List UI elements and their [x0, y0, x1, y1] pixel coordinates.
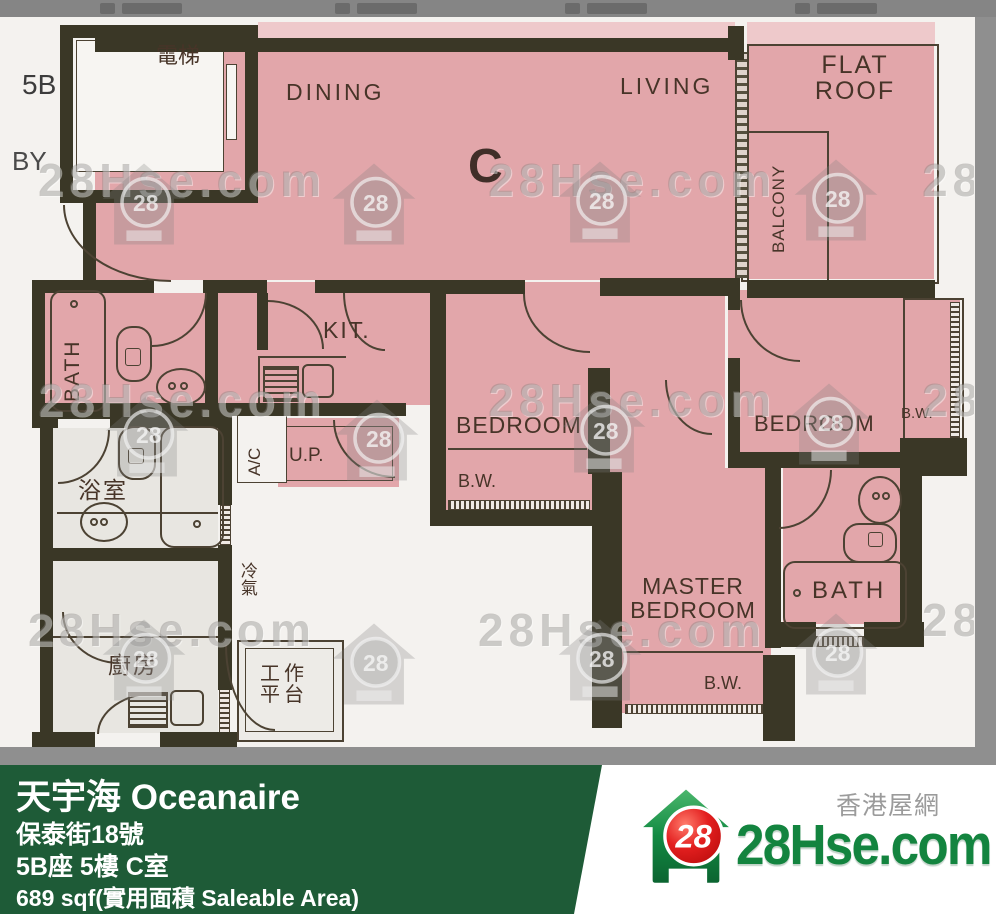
wall: [430, 280, 446, 516]
bath1-label: BATH: [62, 302, 84, 402]
wall: [763, 655, 795, 741]
floor-plan: 5B BY 電梯 DINING LIVING C FLAT ROOF BALCO…: [0, 0, 996, 760]
work-line1: 工作: [260, 663, 308, 685]
toilet-tank: [868, 532, 883, 547]
watermark-fragment: [100, 3, 115, 14]
balcony-glass-wall: [735, 52, 749, 278]
wall: [52, 548, 230, 561]
wall: [588, 368, 610, 474]
door-arc-entrance: [63, 205, 171, 282]
bedroom1-bw-line: [448, 448, 587, 450]
wall: [203, 280, 267, 293]
top-edge-strip: [258, 22, 735, 38]
watermark-fragment: [587, 3, 647, 14]
wall: [443, 280, 525, 294]
svg-text:28: 28: [675, 818, 713, 855]
bathtub: [160, 426, 224, 548]
bw-label-bedroom1: B.W.: [458, 472, 496, 491]
svg-text:28: 28: [363, 650, 389, 676]
wall: [218, 403, 406, 416]
watermark-fragment: [335, 3, 350, 14]
unit-label: C: [468, 142, 503, 192]
work-platform-label: 工作 平台: [250, 664, 318, 706]
scan-edge-top: [0, 0, 996, 17]
property-title: 天宇海 Oceanaire: [16, 769, 300, 820]
watermark-fragment: [795, 3, 810, 14]
sink-dot: [100, 518, 108, 526]
bedroom1-label: BEDROOM: [456, 413, 582, 437]
watermark-fragment: [817, 3, 877, 14]
bw-label-master: B.W.: [704, 674, 742, 693]
kitchen-sink: [302, 364, 334, 398]
bw-label-bedroom2: B.W.: [901, 406, 933, 422]
master-bedroom-label: MASTER BEDROOM: [618, 574, 768, 622]
stove: [128, 692, 168, 728]
adjacent-window-sill2: [219, 688, 230, 735]
lift-inner-outline: [76, 40, 224, 172]
tap-dot: [793, 589, 801, 597]
ac-label: A/C: [246, 424, 264, 476]
watermark-fragment: [565, 3, 580, 14]
master-line2: BEDROOM: [630, 597, 756, 623]
kitchen-cn-label: 廚房: [108, 653, 158, 677]
work-line2: 平台: [260, 684, 308, 706]
wall: [600, 278, 740, 296]
site-logo-house-icon: 28: [638, 786, 734, 886]
wall: [257, 293, 268, 350]
wall: [60, 25, 73, 203]
block-label: 5B: [22, 70, 56, 99]
dining-label: DINING: [286, 80, 385, 104]
kitchen-sink: [170, 690, 204, 726]
watermark-fragment: [122, 3, 182, 14]
site-logo-chinese: 香港屋網: [836, 786, 940, 822]
kit-label: KIT.: [323, 318, 371, 342]
scan-edge-right: [975, 17, 996, 747]
master-line1: MASTER: [642, 573, 744, 599]
master-bw-line: [623, 651, 763, 653]
kit-counter-line-v: [258, 356, 260, 403]
bedroom2-label: BEDROOM: [754, 412, 875, 435]
toilet-tank: [128, 448, 144, 464]
up-label: U.P.: [289, 446, 324, 466]
bedroom1-window-sill: [448, 500, 590, 510]
sink-dot: [90, 518, 98, 526]
property-info-bar: 天宇海 Oceanaire 保泰街18號 5B座 5樓 C室 689 sqf(實…: [0, 765, 602, 914]
wall: [728, 452, 903, 468]
wall: [32, 415, 58, 428]
tap-dot: [193, 520, 201, 528]
wall: [160, 732, 237, 747]
wall: [60, 25, 258, 38]
footer: 天宇海 Oceanaire 保泰街18號 5B座 5樓 C室 689 sqf(實…: [0, 765, 996, 914]
footer-divider: [0, 747, 996, 765]
watermark-fragment: 28Hse.com: [922, 593, 974, 647]
aircon-label: 冷氣: [238, 562, 256, 596]
floor-plan-page: 5B BY 電梯 DINING LIVING C FLAT ROOF BALCO…: [0, 0, 996, 914]
top-edge-strip-roof: [747, 22, 935, 44]
property-address: 保泰街18號: [16, 815, 144, 851]
kit-counter-line-h: [258, 356, 346, 358]
property-unit: 5B座 5樓 C室: [16, 847, 169, 883]
balcony-label: BALCONY: [770, 148, 788, 253]
wall: [747, 280, 935, 298]
sink-dot: [872, 492, 880, 500]
sink-dot: [882, 492, 890, 500]
sink-dot: [180, 382, 188, 390]
bathroom2-window-sill: [816, 636, 866, 647]
lift-door: [226, 64, 237, 140]
master-window-sill: [625, 704, 765, 714]
flat-roof-line1: FLAT: [821, 51, 888, 79]
flat-roof-label: FLAT ROOF: [800, 52, 910, 105]
living-label: LIVING: [620, 74, 713, 98]
wall: [430, 510, 592, 526]
lift-label: 電梯: [156, 44, 200, 67]
wall: [40, 428, 53, 745]
bathroom-cn-label: 浴室: [78, 478, 128, 502]
wall: [32, 732, 95, 747]
sink-dot: [168, 382, 176, 390]
wall: [205, 293, 218, 405]
lobby-label: BY: [12, 148, 47, 175]
wall: [728, 296, 740, 310]
wall: [315, 280, 443, 293]
sink: [858, 476, 902, 524]
wall: [728, 26, 744, 60]
bedroom2-window-sill: [950, 302, 960, 439]
property-area: 689 sqf(實用面積 Saleable Area): [16, 879, 359, 913]
toilet-tank: [125, 348, 141, 366]
stove: [263, 366, 299, 402]
watermark-fragment: [357, 3, 417, 14]
bath2-label: BATH: [812, 578, 886, 603]
flat-roof-line2: ROOF: [815, 77, 895, 105]
